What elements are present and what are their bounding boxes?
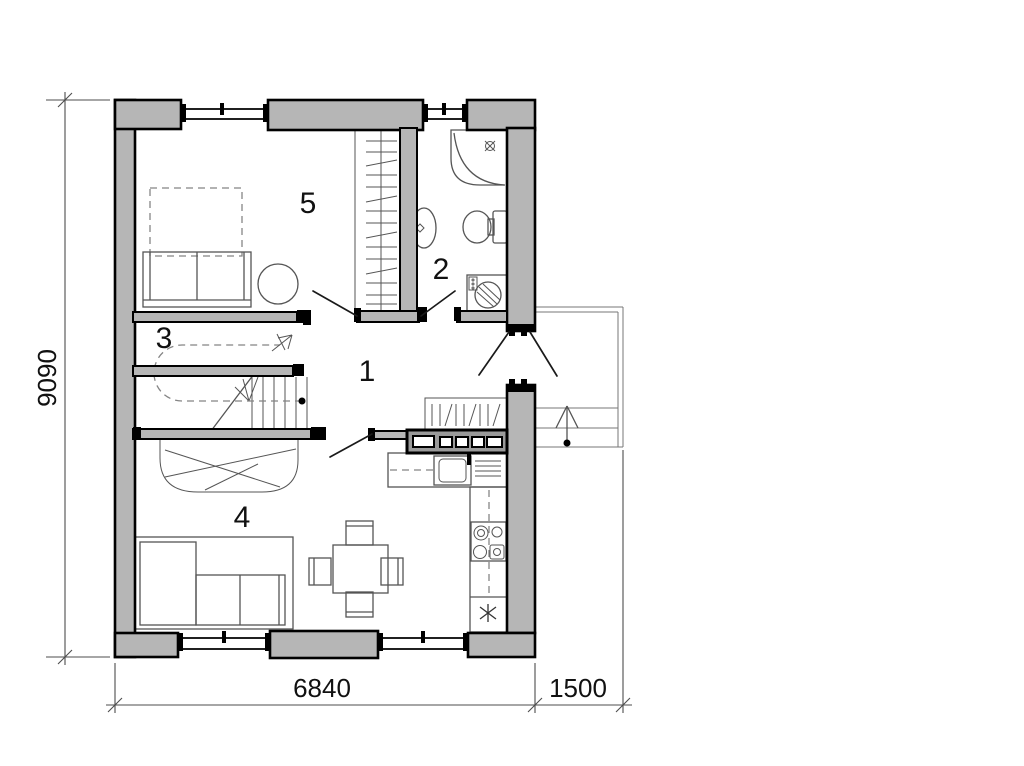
- entry-arrow: [556, 406, 578, 447]
- exterior-wall-left: [115, 100, 135, 657]
- toilet: [463, 211, 507, 243]
- dimension-width: 6840 1500: [106, 450, 632, 713]
- hall-closet: [425, 398, 507, 432]
- interior-wall-stub-bedroom: [357, 311, 419, 322]
- dimension-height-value: 9090: [32, 349, 62, 407]
- room-label-4: 4: [234, 501, 251, 534]
- floor-plan-canvas: 9090 6840 1500 1 2 3 4 5: [0, 0, 1024, 766]
- understair-storage: [160, 439, 298, 492]
- exterior-wall-top-middle: [268, 100, 423, 130]
- dining-table: [309, 521, 403, 617]
- interior-wall-kitchen: [373, 431, 407, 439]
- exterior-wall-top-right: [467, 100, 535, 130]
- floor-plan-svg: 9090 6840 1500 1 2 3 4 5: [0, 0, 1024, 766]
- door-bedroom: [313, 291, 357, 316]
- bed: [143, 188, 251, 307]
- exterior-walls: [115, 100, 535, 658]
- room-label-5: 5: [300, 187, 317, 220]
- exterior-wall-right-lower: [507, 385, 535, 633]
- exterior-wall-top-left: [115, 100, 181, 129]
- interior-wall-stair-c: [133, 429, 311, 439]
- exterior-wall-bottom-right: [468, 633, 535, 657]
- exterior-wall-right-upper: [507, 128, 535, 331]
- window-top-right: [423, 103, 467, 122]
- interior-wall-stub-bath: [457, 311, 507, 322]
- dimension-porch-value: 1500: [549, 673, 607, 703]
- room-label-3: 3: [156, 322, 173, 355]
- entrance-door-leaf-out: [530, 332, 557, 376]
- wardrobe: [355, 128, 400, 311]
- kitchen-sink: [434, 452, 501, 485]
- window-bottom-right: [378, 631, 468, 651]
- window-top-left: [181, 103, 268, 122]
- furniture-layer: [134, 128, 623, 632]
- exterior-wall-bottom-middle: [270, 631, 378, 658]
- sofa: [134, 537, 293, 629]
- pouf: [258, 264, 298, 304]
- window-bottom-left: [178, 631, 270, 651]
- kitchen-partition: [407, 430, 507, 453]
- fridge-snowflake-icon: [480, 604, 496, 622]
- room-label-1: 1: [359, 355, 376, 388]
- interior-wall-bed-bath: [400, 128, 417, 313]
- interior-wall-stair-b: [133, 366, 293, 376]
- washing-machine: [467, 275, 507, 316]
- exterior-wall-bottom-left: [115, 633, 178, 657]
- kitchen-counter: [388, 453, 507, 632]
- interior-wall-stair-a: [133, 312, 297, 322]
- door-bathroom: [421, 291, 455, 316]
- dimension-width-value: 6840: [293, 673, 351, 703]
- porch: [535, 307, 623, 447]
- dimension-height: 9090: [32, 92, 110, 665]
- door-kitchen: [330, 434, 372, 457]
- room-label-2: 2: [433, 253, 450, 286]
- entrance-door-leaf-in: [479, 332, 509, 375]
- shower: [451, 130, 505, 185]
